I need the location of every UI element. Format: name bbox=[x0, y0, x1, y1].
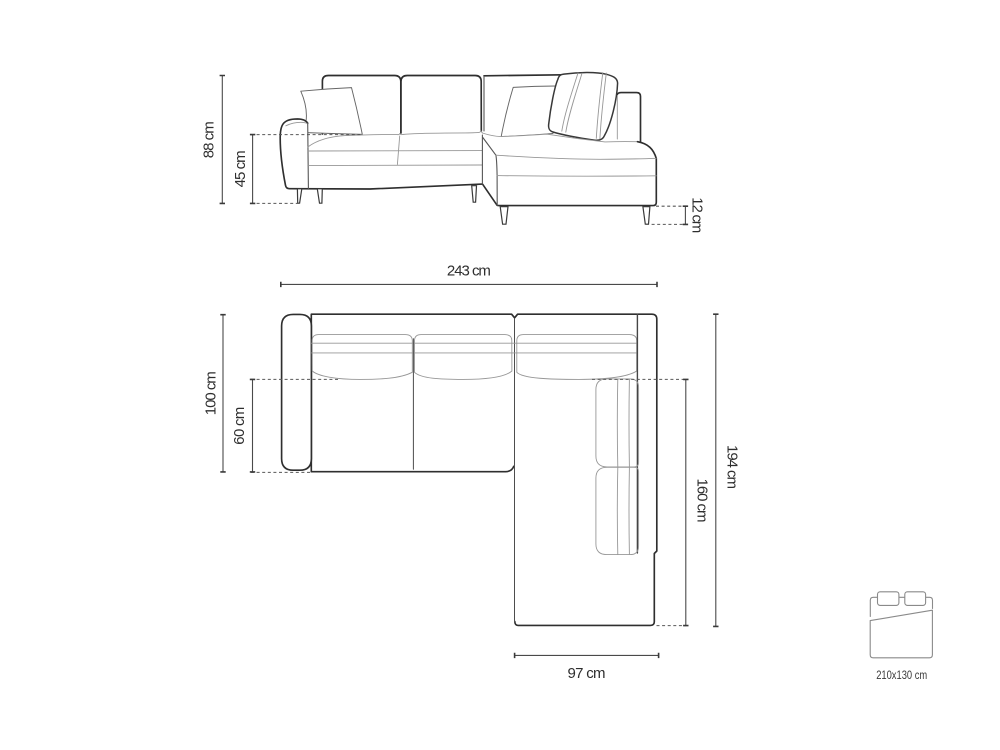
svg-text:100 cm: 100 cm bbox=[203, 371, 220, 415]
svg-text:243 cm: 243 cm bbox=[447, 262, 491, 279]
svg-text:194 cm: 194 cm bbox=[723, 445, 740, 489]
svg-text:160 cm: 160 cm bbox=[693, 479, 710, 523]
svg-text:88 cm: 88 cm bbox=[201, 121, 218, 158]
svg-text:60 cm: 60 cm bbox=[231, 407, 248, 445]
svg-text:97 cm: 97 cm bbox=[568, 665, 606, 682]
svg-text:210x130 cm: 210x130 cm bbox=[876, 668, 927, 682]
svg-text:12 cm: 12 cm bbox=[689, 197, 706, 233]
svg-text:45 cm: 45 cm bbox=[232, 150, 249, 187]
